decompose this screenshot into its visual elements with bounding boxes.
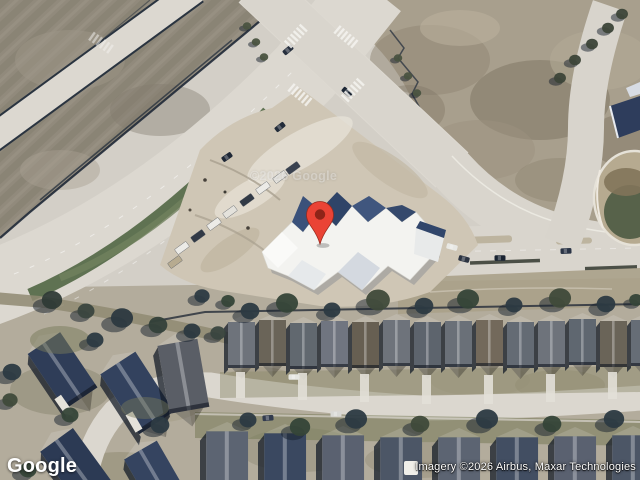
imagery-attribution: Imagery ©2026 Airbus, Maxar Technologies xyxy=(415,461,636,474)
pin-body xyxy=(307,202,334,245)
google-logo[interactable]: Google xyxy=(7,456,77,476)
map-pin[interactable] xyxy=(300,195,340,249)
map-viewport[interactable]: ©2026 Google Google Imagery ©2026 Airbus… xyxy=(0,0,640,480)
pin-dot xyxy=(315,209,325,219)
pin-shadow xyxy=(317,243,330,248)
